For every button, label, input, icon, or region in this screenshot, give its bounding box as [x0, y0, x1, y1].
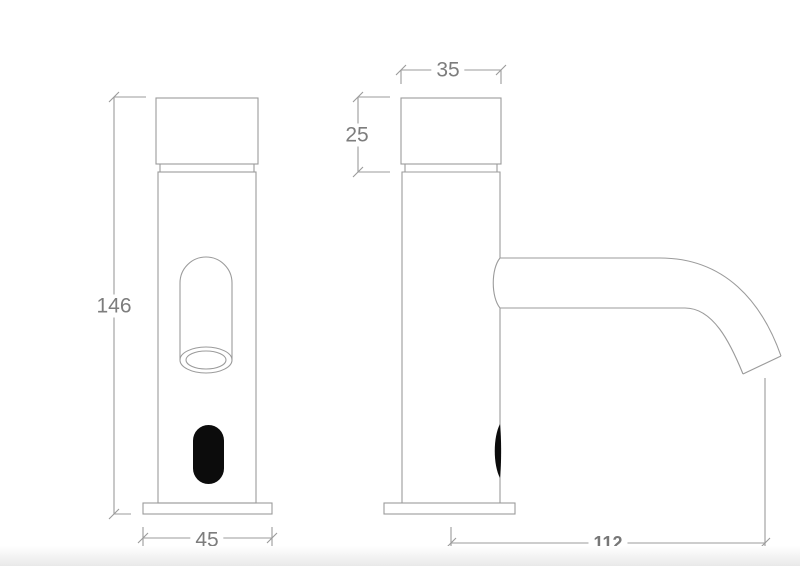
faucet-body-side: [402, 172, 500, 503]
base-plate-front: [143, 503, 272, 514]
front-view-drawing: [143, 98, 272, 514]
spout-bottom-outline: [500, 308, 743, 374]
faucet-neck-front: [160, 164, 254, 172]
base-plate-side: [384, 503, 515, 514]
side-view-drawing: [384, 98, 781, 514]
faucet-neck-side: [405, 164, 497, 172]
faucet-cap-front: [156, 98, 258, 164]
page-bottom-shade: [0, 546, 800, 566]
spout-tip-face: [743, 356, 781, 374]
spout-top-outline: [500, 258, 781, 356]
technical-drawing-page: 146 45 35 25 112: [0, 0, 800, 566]
dimension-spout-reach-112: [446, 378, 770, 548]
spout-tube-front: [180, 257, 232, 360]
dim-label-height: 146: [91, 295, 136, 318]
sensor-window-side: [495, 424, 501, 478]
dim-label-cap-height: 25: [340, 124, 373, 147]
dim-label-cap-width: 35: [431, 59, 464, 82]
technical-drawing-canvas: [0, 0, 800, 566]
sensor-window-front: [193, 425, 224, 484]
faucet-cap-side: [401, 98, 501, 164]
spout-outlet-bore: [186, 351, 226, 369]
